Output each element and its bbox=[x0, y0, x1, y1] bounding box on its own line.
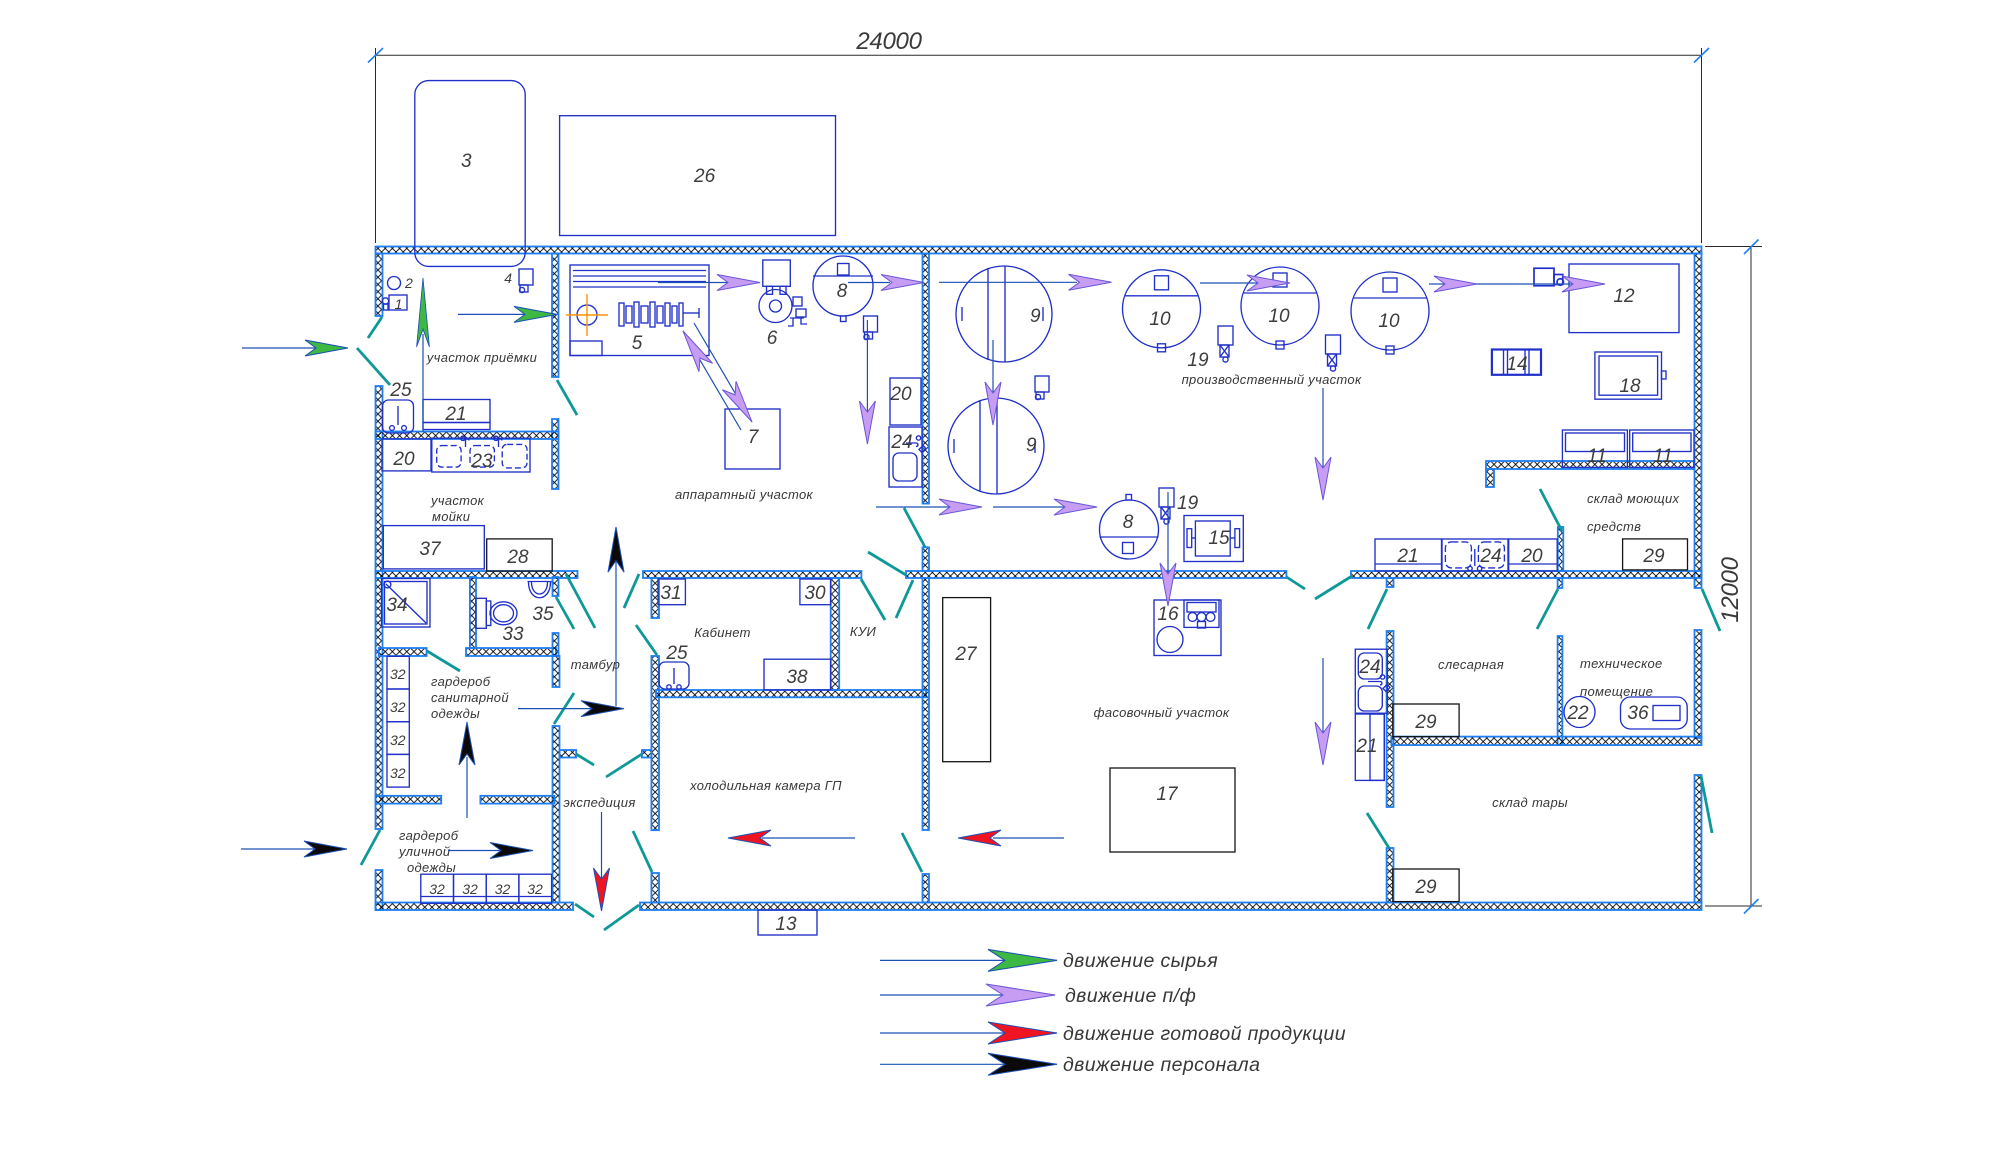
svg-text:32: 32 bbox=[429, 881, 445, 897]
svg-text:2: 2 bbox=[404, 275, 413, 291]
svg-text:7: 7 bbox=[748, 427, 760, 448]
svg-text:14: 14 bbox=[1506, 354, 1527, 375]
svg-text:13: 13 bbox=[775, 914, 797, 935]
svg-text:6: 6 bbox=[767, 328, 778, 349]
svg-text:8: 8 bbox=[1123, 512, 1134, 533]
svg-text:34: 34 bbox=[386, 595, 407, 616]
svg-text:23: 23 bbox=[470, 451, 493, 472]
svg-text:1: 1 bbox=[395, 296, 403, 312]
svg-text:движение сырья: движение сырья bbox=[1063, 950, 1218, 972]
svg-text:участок приёмки: участок приёмки bbox=[426, 350, 537, 365]
svg-text:33: 33 bbox=[502, 624, 524, 645]
svg-text:24: 24 bbox=[1479, 546, 1501, 567]
svg-text:32: 32 bbox=[390, 699, 406, 715]
svg-text:12000: 12000 bbox=[1717, 556, 1744, 622]
svg-text:38: 38 bbox=[786, 667, 808, 688]
svg-text:35: 35 bbox=[532, 604, 554, 625]
svg-text:21: 21 bbox=[1355, 736, 1377, 757]
svg-text:12: 12 bbox=[1613, 286, 1635, 307]
svg-text:18: 18 bbox=[1619, 376, 1641, 397]
svg-text:25: 25 bbox=[665, 643, 688, 664]
svg-text:аппаратный участок: аппаратный участок bbox=[675, 487, 813, 502]
svg-text:8: 8 bbox=[837, 281, 848, 302]
svg-text:20: 20 bbox=[392, 449, 415, 470]
svg-text:11: 11 bbox=[1587, 446, 1607, 467]
svg-text:27: 27 bbox=[954, 644, 978, 665]
svg-text:21: 21 bbox=[444, 404, 466, 425]
svg-text:уличной: уличной bbox=[398, 844, 450, 859]
svg-text:одежды: одежды bbox=[431, 706, 480, 721]
svg-text:мойки: мойки bbox=[432, 509, 470, 524]
svg-text:19: 19 bbox=[1187, 350, 1209, 371]
svg-text:24000: 24000 bbox=[855, 28, 922, 55]
svg-text:5: 5 bbox=[632, 333, 643, 354]
svg-text:движение персонала: движение персонала bbox=[1063, 1054, 1260, 1076]
svg-text:фасовочный участок: фасовочный участок bbox=[1094, 705, 1230, 720]
svg-text:16: 16 bbox=[1157, 604, 1179, 625]
svg-text:склад тары: склад тары bbox=[1492, 795, 1568, 810]
svg-text:участок: участок bbox=[430, 493, 485, 508]
svg-text:32: 32 bbox=[390, 666, 406, 682]
svg-text:10: 10 bbox=[1149, 309, 1171, 330]
svg-text:37: 37 bbox=[419, 539, 442, 560]
svg-text:32: 32 bbox=[390, 732, 406, 748]
svg-text:санитарной: санитарной bbox=[431, 690, 509, 705]
svg-text:склад моющих: склад моющих bbox=[1587, 491, 1680, 506]
svg-text:30: 30 bbox=[804, 583, 826, 604]
svg-text:32: 32 bbox=[390, 765, 406, 781]
svg-text:24: 24 bbox=[1358, 657, 1380, 678]
svg-text:4: 4 bbox=[504, 270, 512, 286]
svg-text:36: 36 bbox=[1627, 703, 1649, 724]
svg-text:32: 32 bbox=[527, 881, 543, 897]
svg-text:слесарная: слесарная bbox=[1438, 657, 1504, 672]
svg-text:20: 20 bbox=[889, 384, 912, 405]
svg-text:22: 22 bbox=[1566, 703, 1589, 724]
svg-text:гардероб: гардероб bbox=[399, 828, 459, 843]
svg-text:29: 29 bbox=[1414, 877, 1437, 898]
svg-text:КУИ: КУИ bbox=[850, 624, 877, 639]
svg-text:32: 32 bbox=[462, 881, 478, 897]
svg-text:гардероб: гардероб bbox=[431, 674, 491, 689]
svg-text:15: 15 bbox=[1208, 528, 1230, 549]
svg-text:10: 10 bbox=[1268, 306, 1290, 327]
svg-text:движение п/ф: движение п/ф bbox=[1065, 985, 1196, 1007]
svg-text:31: 31 bbox=[660, 583, 681, 604]
svg-text:28: 28 bbox=[506, 547, 529, 568]
svg-text:техническое: техническое bbox=[1580, 656, 1663, 671]
svg-text:3: 3 bbox=[461, 151, 472, 172]
svg-text:26: 26 bbox=[693, 166, 716, 187]
svg-text:экспедиция: экспедиция bbox=[563, 795, 635, 810]
svg-text:21: 21 bbox=[1396, 546, 1418, 567]
svg-text:9: 9 bbox=[1030, 306, 1041, 327]
svg-text:11: 11 bbox=[1653, 446, 1673, 467]
svg-text:19: 19 bbox=[1177, 493, 1199, 514]
svg-text:одежды: одежды bbox=[407, 860, 456, 875]
svg-text:20: 20 bbox=[1520, 546, 1543, 567]
svg-text:движение готовой продукции: движение готовой продукции bbox=[1063, 1023, 1346, 1045]
svg-text:17: 17 bbox=[1156, 784, 1179, 805]
svg-text:Кабинет: Кабинет bbox=[694, 625, 751, 640]
svg-text:9: 9 bbox=[1026, 435, 1037, 456]
svg-text:25: 25 bbox=[389, 380, 412, 401]
svg-text:производственный участок: производственный участок bbox=[1182, 372, 1362, 387]
svg-text:10: 10 bbox=[1378, 311, 1400, 332]
svg-text:24: 24 bbox=[890, 432, 912, 453]
svg-text:тамбур: тамбур bbox=[571, 657, 620, 672]
svg-text:холодильная камера ГП: холодильная камера ГП bbox=[689, 778, 842, 793]
svg-text:32: 32 bbox=[495, 881, 511, 897]
svg-text:29: 29 bbox=[1642, 546, 1665, 567]
svg-text:средств: средств bbox=[1587, 519, 1641, 534]
svg-text:29: 29 bbox=[1414, 712, 1437, 733]
